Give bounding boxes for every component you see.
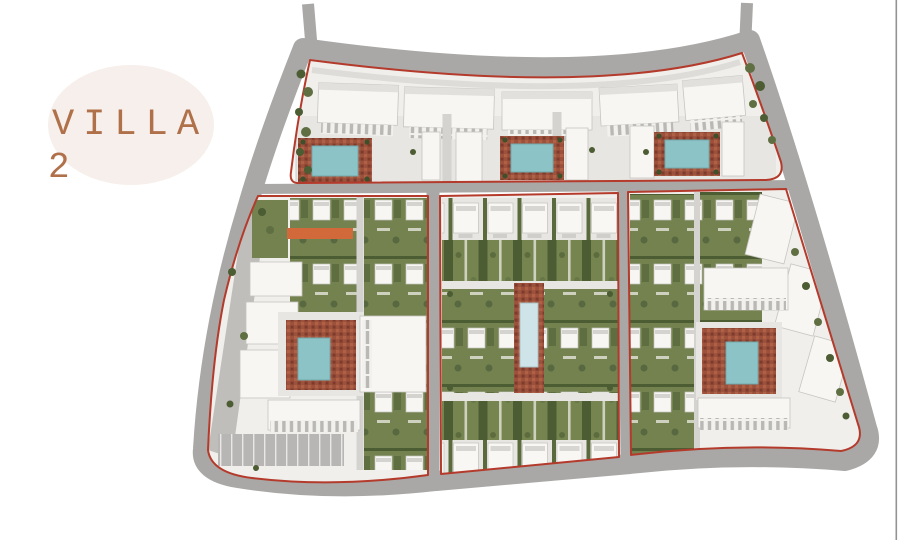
page: VILLA 2 bbox=[0, 0, 900, 540]
site-plan-figure: VILLA 2 bbox=[0, 0, 900, 540]
badge-line1: VILLA bbox=[52, 104, 208, 146]
linear-pool bbox=[520, 303, 538, 367]
east-block bbox=[628, 189, 860, 456]
street-east bbox=[624, 189, 627, 457]
orange-building bbox=[287, 228, 353, 239]
parking-area bbox=[218, 434, 344, 466]
wing-building bbox=[722, 122, 744, 176]
villa-2-badge: VILLA 2 bbox=[48, 65, 214, 188]
townhouse-rows bbox=[442, 289, 516, 393]
east-courtyard-pool bbox=[702, 328, 776, 394]
pool bbox=[312, 146, 358, 176]
apartment-slab bbox=[704, 268, 788, 310]
access-road-north-west bbox=[308, 4, 312, 52]
pool bbox=[665, 140, 709, 168]
courtyard-pool-2 bbox=[500, 136, 564, 180]
villa-row-north bbox=[442, 198, 618, 240]
west-courtyard-pool bbox=[286, 320, 356, 390]
townhouse-rows bbox=[290, 198, 358, 316]
badge-line2: 2 bbox=[48, 147, 70, 188]
inner-lane bbox=[442, 393, 618, 401]
apartment-slab bbox=[250, 262, 302, 296]
townhouse-rows bbox=[544, 289, 618, 393]
wing-building bbox=[456, 132, 482, 182]
courtyard-east-building bbox=[360, 316, 426, 392]
south-comb-building bbox=[268, 400, 360, 432]
south-comb-building bbox=[698, 398, 790, 430]
street-horizontal bbox=[256, 185, 800, 189]
garden-strips-south bbox=[442, 401, 618, 440]
pool bbox=[726, 342, 758, 384]
pool bbox=[298, 338, 330, 380]
townhouse-rows bbox=[630, 194, 694, 456]
pool bbox=[511, 144, 553, 172]
courtyard-pool-1 bbox=[298, 138, 372, 183]
access-road-north-east bbox=[745, 3, 747, 48]
garden-strips-north bbox=[442, 240, 618, 281]
central-pool-spine bbox=[514, 283, 544, 397]
wing-building bbox=[422, 132, 440, 180]
central-block-content bbox=[442, 198, 618, 476]
apartment-slab bbox=[317, 83, 399, 137]
wing-building bbox=[566, 128, 588, 180]
page-right-border bbox=[896, 0, 898, 540]
wing-building bbox=[630, 126, 654, 178]
central-block bbox=[440, 193, 619, 476]
courtyard-pool-3 bbox=[654, 132, 720, 176]
